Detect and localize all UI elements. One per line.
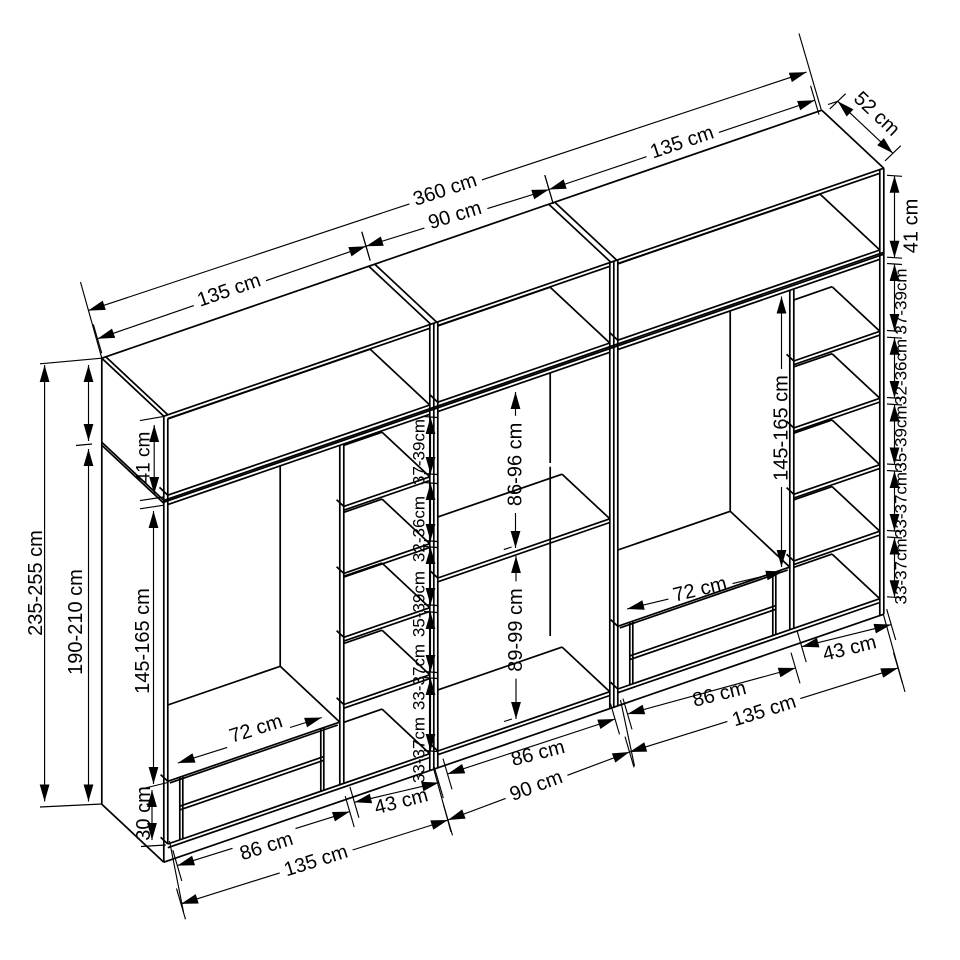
svg-text:32-36cm: 32-36cm: [892, 339, 911, 405]
svg-text:41 cm: 41 cm: [134, 432, 155, 484]
svg-text:37-39cm: 37-39cm: [410, 419, 429, 485]
svg-text:86-96 cm: 86-96 cm: [505, 423, 527, 506]
svg-text:35-39cm: 35-39cm: [892, 405, 911, 471]
svg-text:35-39cm: 35-39cm: [410, 571, 429, 637]
svg-text:41 cm: 41 cm: [901, 199, 923, 253]
svg-text:33-37cm: 33-37cm: [410, 717, 429, 783]
svg-text:30 cm: 30 cm: [133, 786, 155, 840]
svg-text:37-39cm: 37-39cm: [892, 268, 911, 334]
svg-text:32-36cm: 32-36cm: [410, 496, 429, 562]
svg-text:33-37cm: 33-37cm: [892, 538, 911, 604]
svg-text:145-165 cm: 145-165 cm: [771, 375, 793, 481]
svg-text:235-255 cm: 235-255 cm: [25, 530, 47, 636]
svg-text:190-210 cm: 190-210 cm: [65, 569, 87, 675]
svg-text:33-37cm: 33-37cm: [892, 472, 911, 538]
svg-text:33-37cm: 33-37cm: [410, 644, 429, 710]
svg-text:145-165 cm: 145-165 cm: [132, 588, 154, 694]
svg-text:89-99 cm: 89-99 cm: [505, 588, 527, 671]
